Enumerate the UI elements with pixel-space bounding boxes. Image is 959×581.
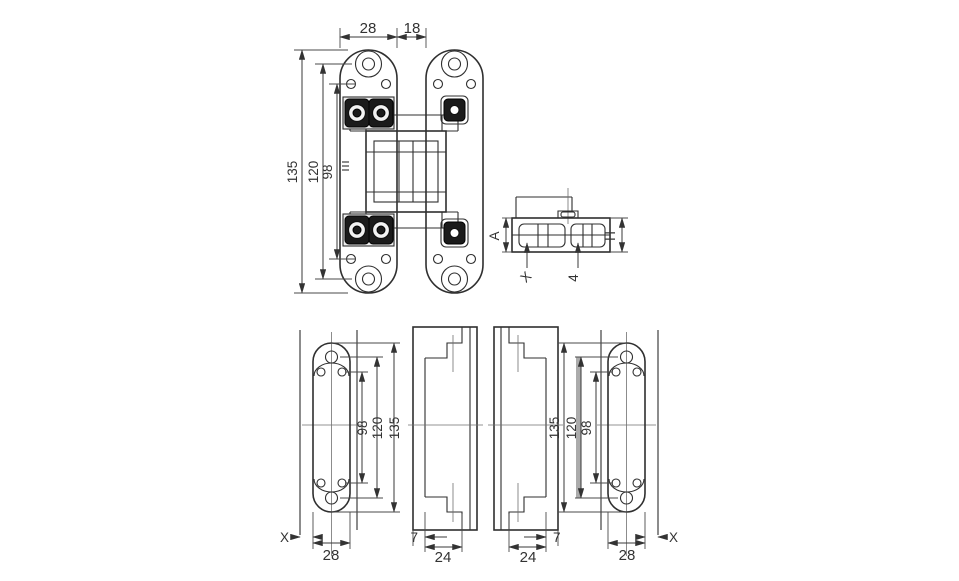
technical-drawing-canvas: 28 18 135 120 98 (0, 0, 959, 581)
dim-outer-span: 120 (306, 161, 321, 184)
dim-plate-right-outer: 135 (547, 417, 562, 440)
dim-plate-right-mid: 120 (564, 417, 579, 440)
leader-4-label: 4 (566, 274, 581, 282)
dim-plate-left-mid: 120 (370, 417, 385, 440)
dim-plate-left-offset: X (280, 530, 289, 545)
front-top-dimensions: 28 18 (340, 20, 426, 48)
dim-jamb-right-width: 24 (520, 549, 537, 566)
fixing-screw-bottom (441, 219, 468, 247)
mortise-plate-left-geometry (291, 330, 400, 556)
dim-plate-left-outer: 135 (387, 417, 402, 440)
front-view: 28 18 135 120 98 (285, 20, 483, 293)
dim-plate-right-width: 28 (619, 547, 636, 564)
adjustment-screws-top (343, 97, 394, 129)
dim-inner-span: 98 (320, 164, 335, 179)
dim-plate-left-inner: 98 (355, 420, 370, 435)
left-leaf-plate (340, 50, 397, 293)
dim-section-right: H (603, 231, 618, 241)
dim-section-left: A (487, 231, 502, 240)
dim-jamb-left-width: 24 (435, 549, 452, 566)
jamb-section-view-right: 24 7 (488, 327, 563, 566)
hinge-linkage-mechanism (342, 115, 458, 228)
fixing-screw-top (441, 96, 468, 124)
dim-total-height: 135 (285, 161, 300, 184)
jamb-section-view-left: 7 24 (408, 327, 483, 566)
front-left-dimensions: 135 120 98 (285, 50, 356, 293)
mortise-plate-view-left: 98 120 135 X 28 (280, 330, 402, 564)
dim-plate-width: 28 (360, 20, 377, 37)
dim-jamb-right-lip: 7 (553, 530, 561, 545)
adjustment-screws-bottom (343, 214, 394, 246)
mortise-plate-view-right: 135 120 98 28 X (547, 330, 678, 564)
jamb-left-geometry (408, 327, 483, 552)
dim-plate-right-offset: X (669, 530, 678, 545)
right-leaf-plate (426, 50, 483, 293)
mortise-plate-right-geometry (558, 330, 667, 556)
top-section-view: A H X 4 (487, 188, 628, 285)
dim-plate-right-inner: 98 (579, 420, 594, 435)
hinge-drawing-svg: 28 18 135 120 98 (0, 0, 959, 581)
hatch-marks (342, 162, 349, 170)
dim-gap: 18 (404, 20, 421, 37)
dim-plate-left-width: 28 (323, 547, 340, 564)
dim-jamb-left-lip: 7 (410, 530, 418, 545)
leader-x-label: X (517, 268, 534, 285)
